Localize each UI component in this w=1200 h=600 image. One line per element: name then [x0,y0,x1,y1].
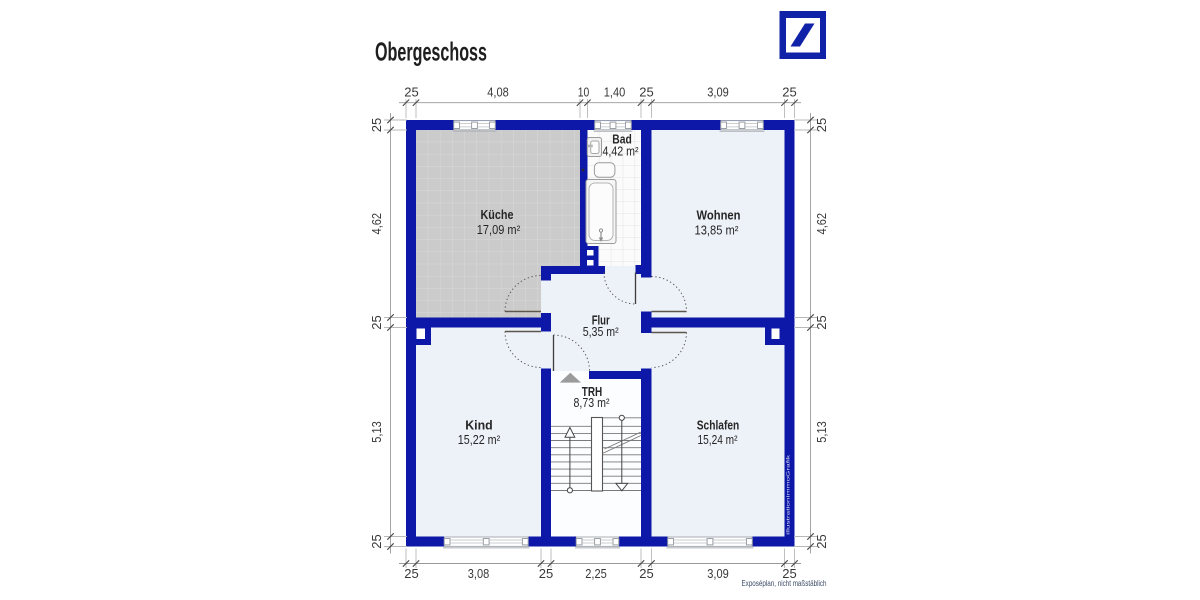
svg-text:25: 25 [639,85,653,100]
svg-text:3,09: 3,09 [707,566,729,581]
svg-text:Wohnen: Wohnen [697,209,741,223]
svg-text:Exposéplan, nicht maßstäblich: Exposéplan, nicht maßstäblich [742,578,827,588]
svg-text:25: 25 [814,315,829,329]
svg-text:25: 25 [369,534,384,548]
svg-text:25: 25 [782,85,796,100]
svg-text:13,85 m²: 13,85 m² [695,224,739,238]
svg-text:25: 25 [369,118,384,132]
svg-text:15,24 m²: 15,24 m² [698,433,738,447]
svg-text:25: 25 [814,534,829,548]
svg-text:10: 10 [578,85,590,100]
svg-text:Obergeschoss: Obergeschoss [375,37,487,67]
svg-text:25: 25 [539,566,553,581]
svg-text:25: 25 [814,118,829,132]
svg-text:4,62: 4,62 [369,213,384,235]
svg-text:5,35 m²: 5,35 m² [583,325,619,339]
svg-text:1,40: 1,40 [604,85,626,100]
svg-text:4,08: 4,08 [487,85,509,100]
svg-text:25: 25 [639,566,653,581]
svg-text:3,09: 3,09 [707,85,729,100]
svg-text:Küche: Küche [481,208,514,222]
svg-text:3,08: 3,08 [468,566,490,581]
svg-text:25: 25 [404,85,418,100]
svg-text:25: 25 [369,315,384,329]
svg-text:4,62: 4,62 [814,213,829,235]
svg-text:15,22 m²: 15,22 m² [458,433,501,447]
svg-text:5,13: 5,13 [369,421,384,443]
svg-text:4,42 m²: 4,42 m² [603,145,639,159]
svg-text:Schlafen: Schlafen [697,419,740,433]
svg-text:Kind: Kind [465,419,493,433]
svg-text:17,09 m²: 17,09 m² [477,223,521,237]
svg-text:5,13: 5,13 [814,421,829,443]
svg-text:8,73 m²: 8,73 m² [574,396,610,410]
svg-text:2,25: 2,25 [585,566,607,581]
svg-text:25: 25 [404,566,418,581]
svg-text:IllustrationImmoGrafik: IllustrationImmoGrafik [786,453,791,535]
